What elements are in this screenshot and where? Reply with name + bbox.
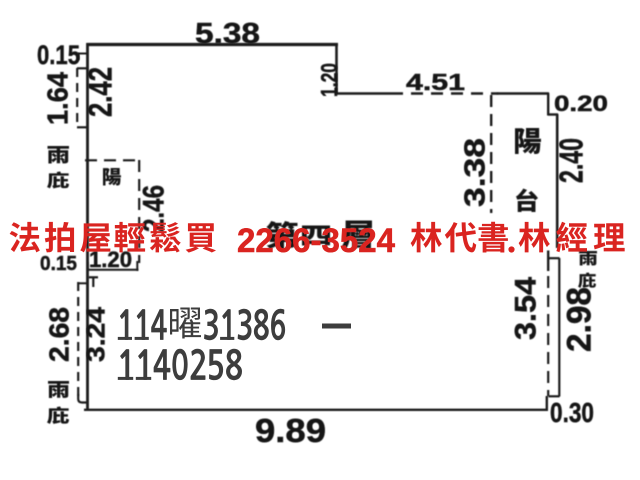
svg-text:4.51: 4.51: [406, 69, 465, 95]
svg-text:9.89: 9.89: [255, 412, 326, 449]
svg-text:3.38: 3.38: [460, 138, 492, 207]
svg-text:3.24: 3.24: [83, 307, 111, 362]
svg-text:0.30: 0.30: [550, 397, 594, 428]
svg-text:2.42: 2.42: [82, 67, 119, 117]
svg-text:2.98: 2.98: [561, 287, 599, 352]
svg-text:1.64: 1.64: [43, 72, 75, 125]
svg-text:3.54: 3.54: [510, 277, 543, 340]
svg-text:5.38: 5.38: [195, 18, 260, 50]
svg-text:0.15: 0.15: [40, 252, 77, 275]
svg-text:2266-3524: 2266-3524: [237, 222, 395, 260]
svg-text:1.20: 1.20: [316, 63, 342, 97]
svg-text:0.15: 0.15: [37, 40, 80, 70]
svg-text:2.68: 2.68: [44, 307, 75, 362]
svg-text:0.20: 0.20: [554, 91, 608, 116]
svg-text:2.40: 2.40: [553, 138, 590, 183]
